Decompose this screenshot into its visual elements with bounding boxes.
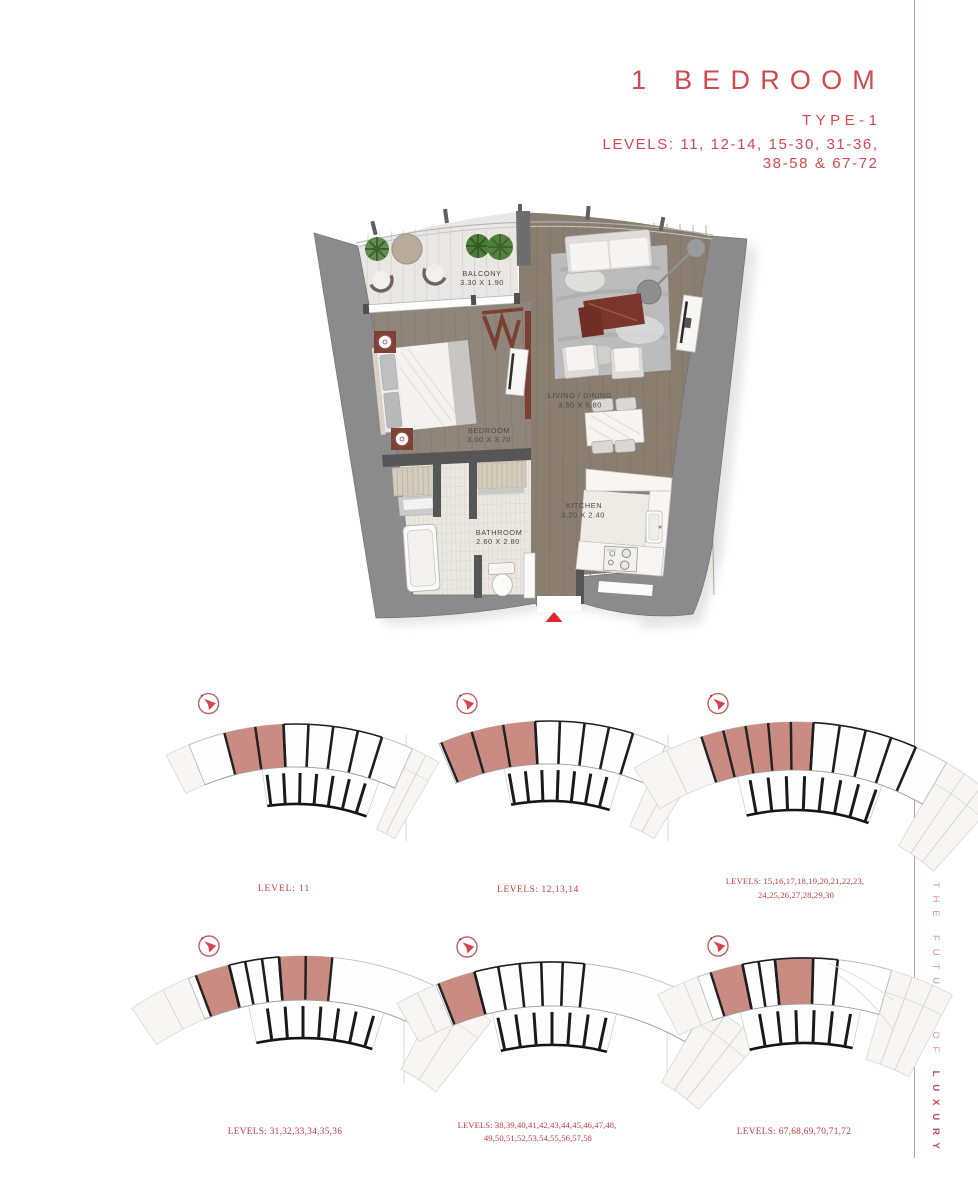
svg-text:3.00 X 3.70: 3.00 X 3.70 — [467, 435, 511, 444]
svg-text:KITCHEN: KITCHEN — [566, 501, 602, 510]
svg-text:LEVELS: 12,13,14: LEVELS: 12,13,14 — [497, 885, 579, 895]
svg-text:3.20 X 2.40: 3.20 X 2.40 — [561, 511, 605, 520]
svg-text:49,50,51,52,53,54,55,56,57,58: 49,50,51,52,53,54,55,56,57,58 — [484, 1133, 592, 1143]
svg-text:LEVELS: 31,32,33,34,35,36: LEVELS: 31,32,33,34,35,36 — [228, 1127, 342, 1137]
svg-text:LEVELS: 38,39,40,41,42,43,44,4: LEVELS: 38,39,40,41,42,43,44,45,46,47,48… — [458, 1120, 617, 1130]
svg-text:2.60 X 2.80: 2.60 X 2.80 — [476, 537, 520, 546]
svg-text:LIVING / DINING: LIVING / DINING — [548, 391, 613, 400]
svg-text:BEDROOM: BEDROOM — [468, 426, 510, 435]
svg-text:24,25,26,27,28,29,30: 24,25,26,27,28,29,30 — [758, 890, 834, 900]
svg-text:LEVELS: 15,16,17,18,19,20,21,2: LEVELS: 15,16,17,18,19,20,21,22,23, — [726, 876, 864, 886]
svg-text:BATHROOM: BATHROOM — [476, 528, 523, 537]
svg-text:LEVELS: 67,68,69,70,71,72: LEVELS: 67,68,69,70,71,72 — [737, 1127, 851, 1137]
svg-text:BALCONY: BALCONY — [462, 269, 501, 278]
svg-text:3.50 X 5.80: 3.50 X 5.80 — [558, 401, 602, 410]
svg-text:LEVEL: 11: LEVEL: 11 — [258, 884, 310, 894]
svg-text:3.30 X 1.90: 3.30 X 1.90 — [460, 278, 504, 287]
